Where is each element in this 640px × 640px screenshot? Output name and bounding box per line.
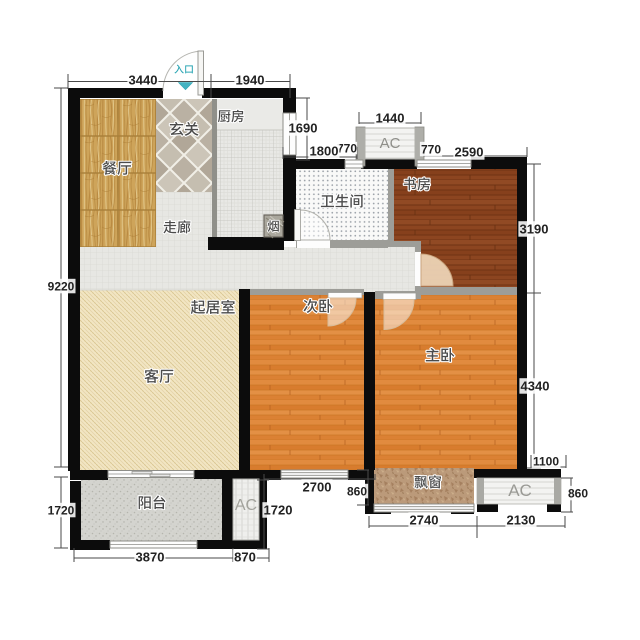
svg-text:AC: AC — [508, 481, 532, 500]
svg-text:1800: 1800 — [310, 144, 339, 159]
svg-text:3870: 3870 — [136, 550, 165, 565]
svg-text:3190: 3190 — [520, 222, 549, 237]
svg-text:860: 860 — [568, 486, 588, 500]
svg-text:AC: AC — [235, 497, 257, 514]
svg-text:1720: 1720 — [264, 503, 293, 518]
svg-text:1690: 1690 — [289, 121, 318, 136]
svg-text:1440: 1440 — [376, 111, 405, 126]
svg-text:9220: 9220 — [48, 279, 75, 293]
svg-text:860: 860 — [347, 484, 367, 498]
svg-text:4340: 4340 — [521, 379, 550, 394]
svg-text:1940: 1940 — [236, 73, 265, 88]
svg-text:870: 870 — [234, 550, 256, 565]
svg-text:1720: 1720 — [48, 503, 75, 517]
svg-text:2130: 2130 — [507, 513, 536, 528]
svg-text:770: 770 — [337, 141, 357, 155]
svg-text:2700: 2700 — [303, 480, 332, 495]
svg-text:3440: 3440 — [129, 73, 158, 88]
svg-text:AC: AC — [380, 135, 401, 152]
svg-text:1100: 1100 — [533, 454, 559, 468]
svg-text:2740: 2740 — [410, 513, 439, 528]
svg-text:2590: 2590 — [455, 145, 484, 160]
svg-text:770: 770 — [421, 142, 441, 156]
